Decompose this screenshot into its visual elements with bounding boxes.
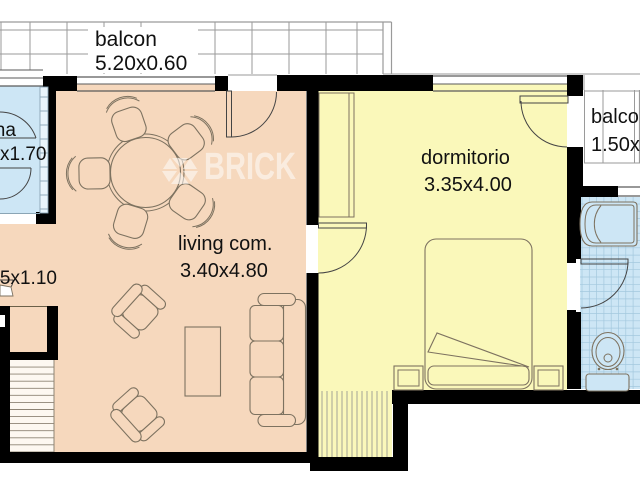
svg-text:living com.: living com.	[178, 233, 272, 255]
svg-text:1.50x0.60: 1.50x0.60	[591, 134, 640, 156]
svg-text:dormitorio: dormitorio	[421, 147, 510, 169]
svg-text:3.35x4.00: 3.35x4.00	[424, 174, 512, 196]
svg-text:cocina: cocina	[0, 120, 16, 141]
svg-text:5.20x0.60: 5.20x0.60	[95, 52, 187, 75]
svg-text:BRICK: BRICK	[204, 146, 296, 188]
svg-text:1.45x1.10: 1.45x1.10	[0, 268, 57, 289]
svg-text:balcon: balcon	[95, 28, 157, 51]
svg-text:balcon: balcon	[591, 106, 640, 128]
svg-text:2.30x1.70: 2.30x1.70	[0, 144, 46, 165]
svg-text:3.40x4.80: 3.40x4.80	[180, 260, 268, 282]
